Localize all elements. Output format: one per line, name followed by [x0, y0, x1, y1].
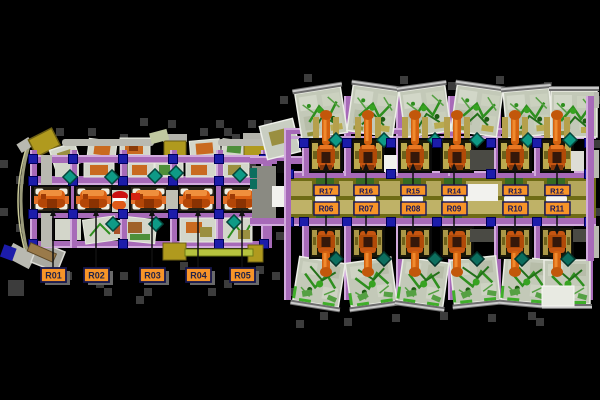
svg-text:R17: R17 — [319, 187, 333, 196]
svg-text:R04: R04 — [190, 271, 207, 281]
svg-text:R06: R06 — [319, 205, 334, 214]
svg-text:R14: R14 — [447, 187, 462, 196]
svg-text:R05: R05 — [234, 271, 251, 281]
svg-text:R01: R01 — [45, 271, 62, 281]
svg-text:R02: R02 — [88, 271, 105, 281]
svg-text:R13: R13 — [508, 187, 522, 196]
svg-text:R09: R09 — [447, 205, 462, 214]
svg-text:R03: R03 — [144, 271, 161, 281]
svg-text:R07: R07 — [359, 205, 374, 214]
svg-text:R08: R08 — [406, 205, 421, 214]
svg-text:R10: R10 — [508, 205, 523, 214]
svg-text:R12: R12 — [550, 187, 564, 196]
svg-text:R15: R15 — [406, 187, 420, 196]
svg-text:R11: R11 — [550, 205, 565, 214]
svg-text:R16: R16 — [359, 187, 373, 196]
